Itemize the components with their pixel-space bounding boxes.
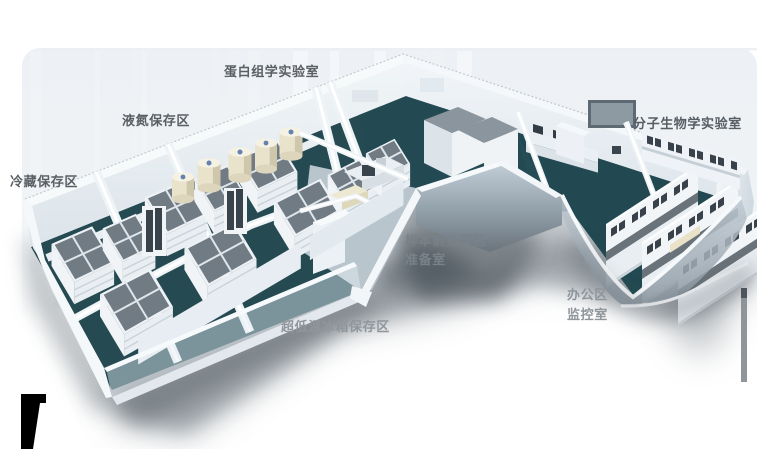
svg-text:分子生物学实验室: 分子生物学实验室 — [633, 116, 742, 131]
svg-text:液氮保存区: 液氮保存区 — [122, 113, 190, 128]
svg-text:监控室: 监控室 — [567, 307, 608, 322]
svg-text:样本前处理区: 样本前处理区 — [405, 233, 487, 248]
svg-text:冷藏保存区: 冷藏保存区 — [10, 174, 78, 189]
svg-text:超低温冰箱保存区: 超低温冰箱保存区 — [281, 319, 390, 334]
svg-text:准备室: 准备室 — [405, 252, 446, 267]
svg-text:蛋白组学实验室: 蛋白组学实验室 — [224, 64, 319, 79]
svg-text:办公区: 办公区 — [567, 287, 608, 302]
